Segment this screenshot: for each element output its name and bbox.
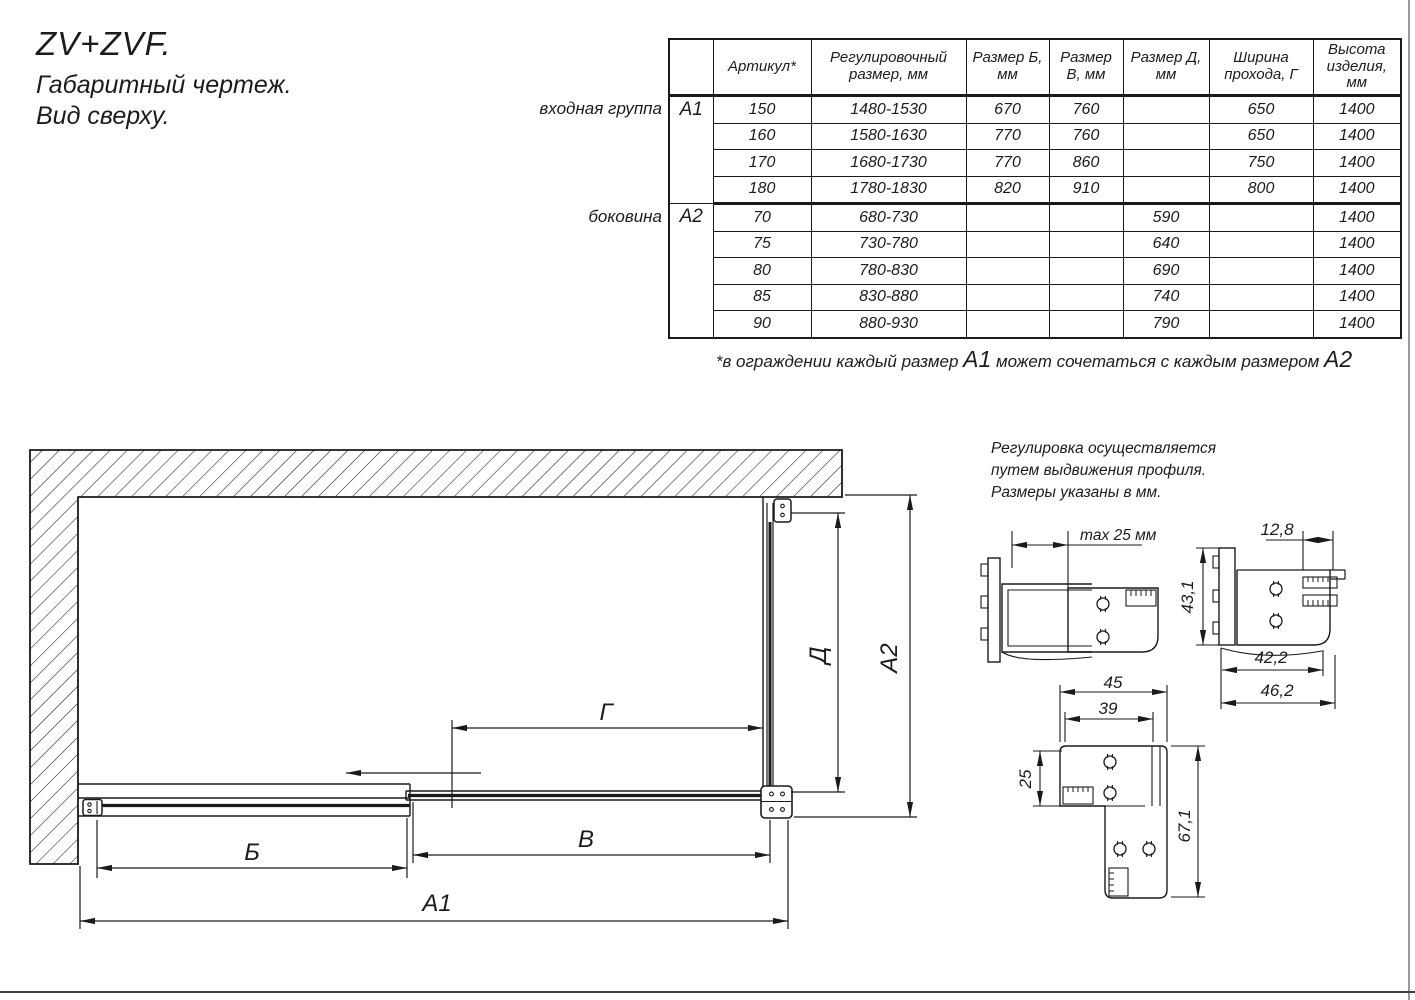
wall-bracket	[83, 800, 102, 816]
detail-label-46-2: 46,2	[1260, 681, 1294, 700]
detail-label-12-8: 12,8	[1260, 520, 1294, 539]
drawing-sheet: ZV+ZVF. Габаритный чертеж. Вид сверху. в…	[0, 0, 1415, 1000]
sheet-right-border	[1408, 0, 1410, 1000]
detail-label-67-1: 67,1	[1175, 809, 1194, 842]
fixed-panel	[78, 784, 410, 816]
dim-label-v: В	[578, 826, 594, 853]
dimension-d: Д	[791, 513, 845, 792]
detail-label-42-2: 42,2	[1254, 648, 1288, 667]
sliding-door-panel	[406, 791, 764, 800]
dimension-a1: А1	[80, 820, 788, 929]
side-panel-top-bracket	[774, 499, 791, 522]
corner-fitting	[761, 786, 792, 818]
dim-label-d: Д	[805, 646, 832, 666]
detail-label-39: 39	[1099, 699, 1118, 718]
profile-detail-side: 12,8 43,1 42,2 46,2	[1178, 520, 1345, 709]
dim-label-g: Г	[599, 699, 614, 726]
detail-label-43-1: 43,1	[1178, 580, 1197, 613]
profile-detail-wall: max 25 мм	[981, 527, 1158, 662]
detail-label-45: 45	[1104, 673, 1123, 692]
detail-label-max25: max 25 мм	[1080, 527, 1157, 544]
dimension-v: В	[413, 802, 770, 863]
dimensional-drawing-canvas: Б В А1 Г Д	[0, 0, 1415, 1000]
dim-label-a2: А2	[876, 643, 903, 674]
sheet-bottom-border	[0, 991, 1415, 993]
wall-section	[30, 450, 842, 864]
side-panel	[761, 497, 792, 818]
detail-label-25: 25	[1016, 769, 1035, 789]
profile-detail-corner: 45 39 25 67,1	[1016, 673, 1205, 898]
dim-label-b: Б	[244, 839, 260, 866]
dim-label-a1: А1	[420, 890, 451, 917]
dimension-b: Б	[97, 818, 407, 878]
